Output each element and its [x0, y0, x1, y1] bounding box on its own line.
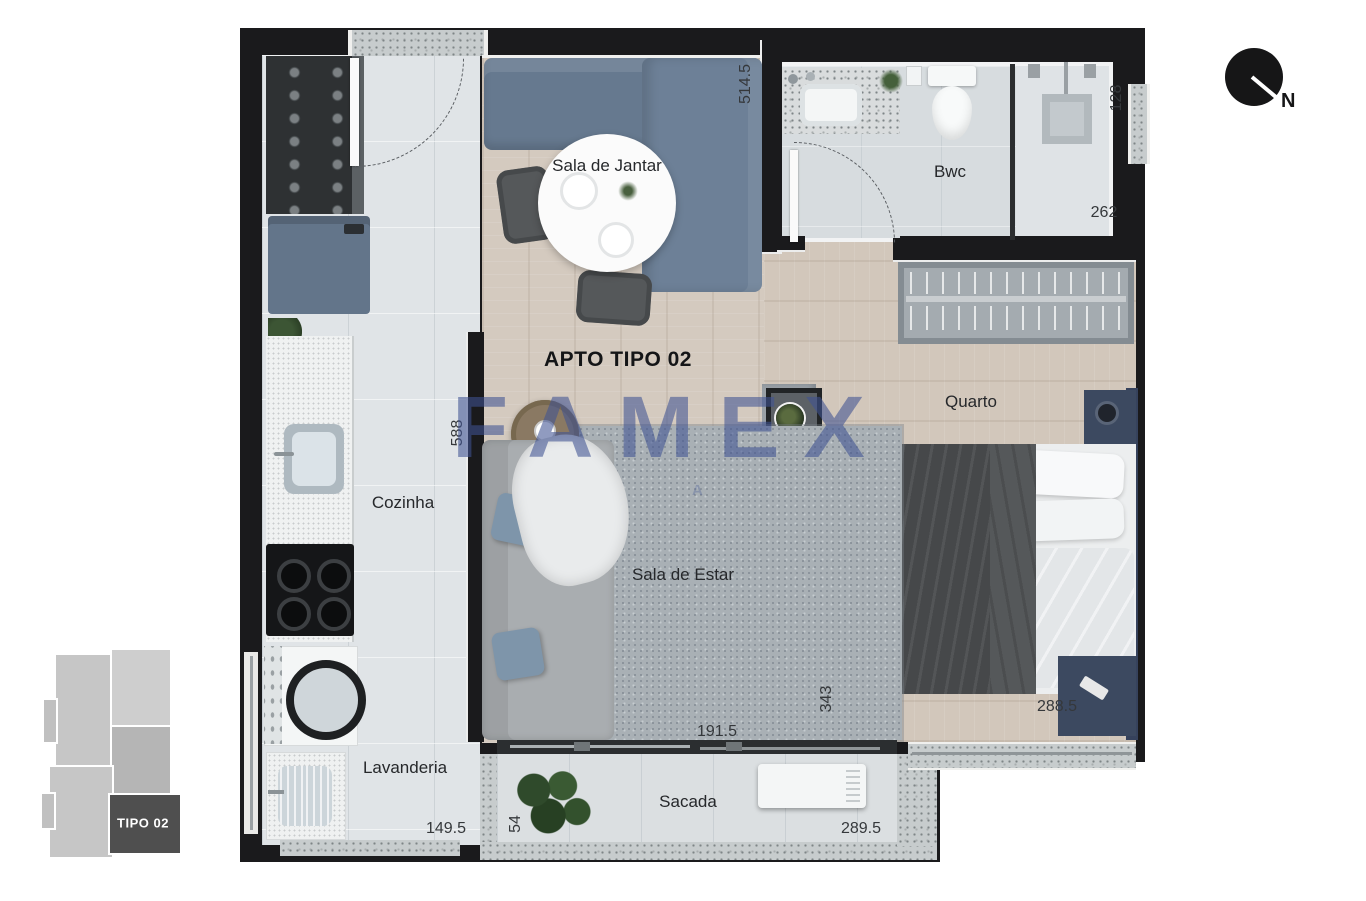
shower-valve	[1084, 64, 1096, 78]
toilet-paper-holder	[906, 66, 922, 86]
refrigerator-handle	[344, 224, 364, 234]
wall-wardrobe-top	[893, 238, 1136, 262]
keyplan-unit-label: TIPO 02	[117, 816, 169, 831]
entry-shelf	[266, 56, 352, 214]
laundry-tub-basin	[278, 766, 332, 826]
stove-burner	[317, 559, 351, 593]
floor-plan: Sala de Jantar Bwc Cozinha Quarto Sala d…	[0, 0, 1366, 901]
dim-laundry-width: 149.5	[426, 820, 466, 838]
laundry-window-glass	[250, 656, 253, 830]
balcony-sliding-door-glass	[510, 745, 690, 748]
north-label: N	[1281, 90, 1295, 113]
dim-kitchen-height: 588	[449, 420, 467, 447]
laundry-sill	[280, 840, 460, 856]
kitchen-sink-basin	[292, 432, 336, 486]
shower-partition	[1010, 64, 1015, 240]
dim-bathroom-window: 128	[1108, 85, 1126, 112]
washing-machine-drum	[286, 660, 366, 740]
bedroom-window-sill	[908, 742, 1136, 770]
dim-dining-right: 514.5	[737, 64, 755, 104]
dim-bedroom-width: 288.5	[1037, 698, 1077, 716]
balcony-plant	[505, 760, 601, 846]
wardrobe-hangers-top	[910, 272, 1122, 294]
wall-dining-bathroom	[760, 40, 782, 254]
keyplan-tab	[42, 698, 58, 744]
dim-bathroom-width: 262	[1091, 204, 1118, 222]
bedroom-window-glass	[912, 752, 1132, 755]
dim-balcony-width: 289.5	[841, 820, 881, 838]
nightstand-lamp	[1098, 404, 1116, 422]
sliding-door-handle	[726, 742, 742, 751]
sofa-pillow	[491, 627, 546, 682]
laundry-label: Lavanderia	[363, 758, 447, 778]
dining-chair	[575, 269, 652, 326]
stove-burner	[317, 597, 351, 631]
keyplan-tab	[40, 792, 56, 830]
bathroom-plant	[878, 68, 904, 94]
balcony-bench-vents	[846, 770, 860, 802]
wardrobe-shelf	[906, 296, 1126, 302]
shower-valve	[1028, 64, 1040, 78]
keyplan-unit	[110, 648, 172, 729]
keyplan-unit	[54, 653, 114, 769]
kitchen-faucet	[274, 452, 294, 456]
dim-balcony-depth: 54	[507, 815, 525, 833]
dim-rack-height: 343	[818, 686, 836, 713]
bedroom-label: Quarto	[945, 392, 997, 412]
keyplan-unit	[110, 725, 172, 797]
wardrobe-hangers-bottom	[910, 306, 1122, 330]
bathroom-window	[1128, 84, 1150, 164]
dim-living-width: 191.5	[697, 723, 737, 741]
bathroom-accessory	[788, 74, 798, 84]
laundry-faucet	[268, 790, 284, 794]
bathroom-label: Bwc	[934, 162, 966, 182]
entry-sill	[348, 30, 488, 56]
balcony-label: Sacada	[659, 792, 717, 812]
dining-plate	[560, 172, 598, 210]
bed-blanket-fold	[990, 444, 1036, 694]
dining-plate	[598, 222, 634, 258]
stove-burner	[277, 559, 311, 593]
living-label: Sala de Estar	[632, 565, 734, 585]
dining-label: Sala de Jantar	[552, 156, 662, 176]
watermark-subtext: A	[692, 482, 703, 499]
toilet-tank	[928, 66, 976, 86]
kitchen-label: Cozinha	[372, 493, 434, 513]
bathroom-sink	[800, 84, 862, 126]
bathroom-accessory	[806, 72, 815, 81]
washing-machine-panel	[264, 646, 282, 744]
plan-title: APTO TIPO 02	[544, 348, 692, 372]
keyplan-unit	[48, 765, 114, 859]
sliding-door-handle	[574, 742, 590, 751]
shower-head	[1042, 94, 1092, 144]
stove-burner	[277, 597, 311, 631]
